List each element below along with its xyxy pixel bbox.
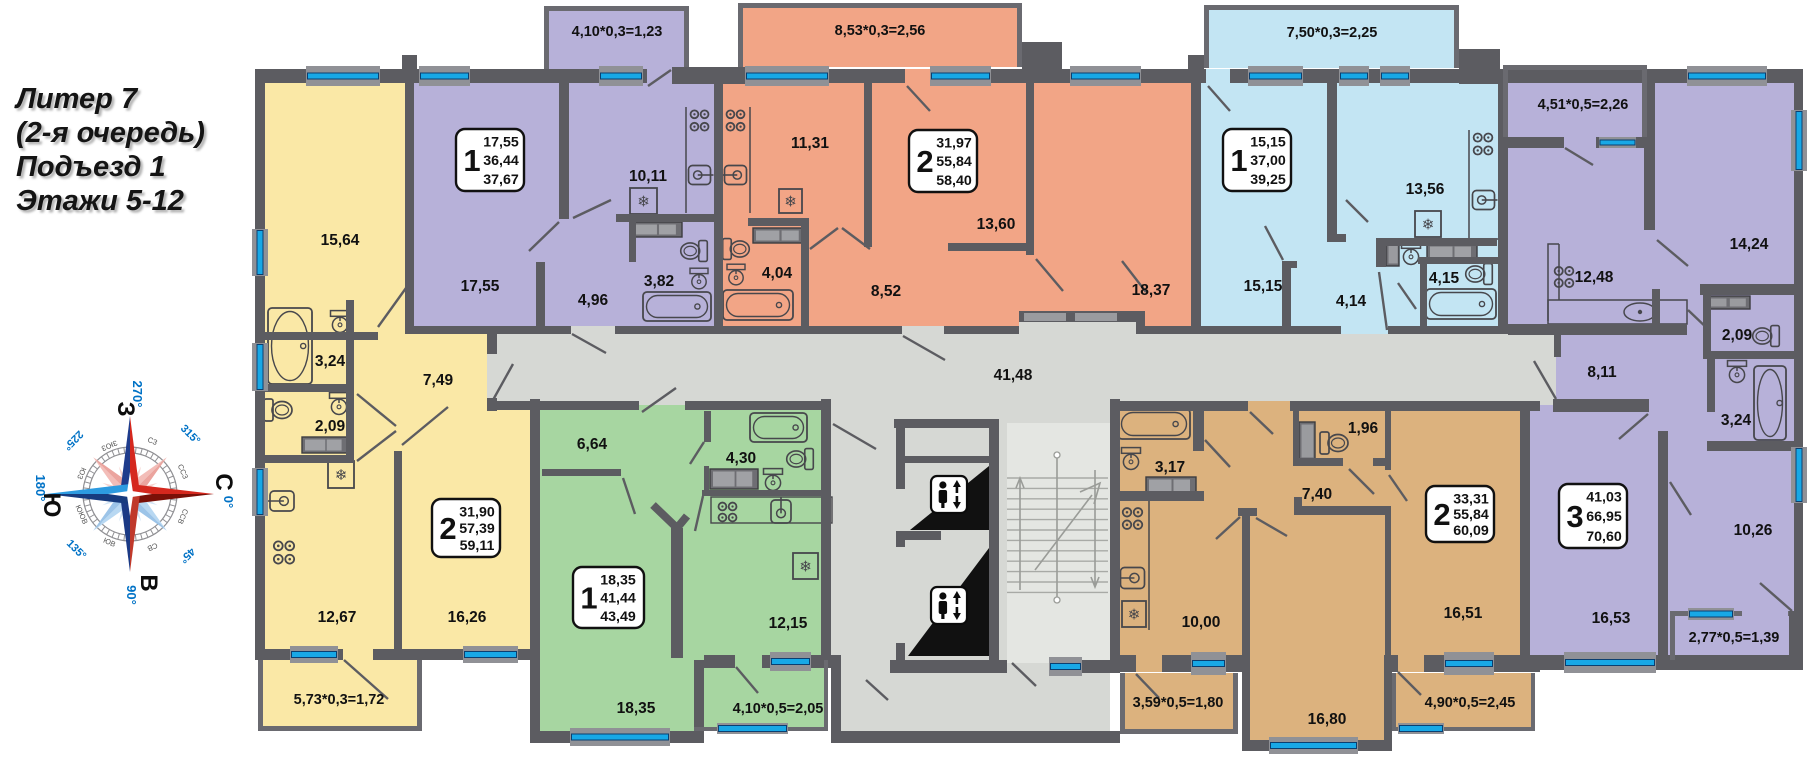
svg-text:12,15: 12,15 — [769, 615, 808, 632]
svg-text:ЮЗ: ЮЗ — [75, 466, 88, 481]
svg-text:60,09: 60,09 — [1453, 523, 1489, 539]
svg-text:4,10*0,5=2,05: 4,10*0,5=2,05 — [733, 701, 824, 717]
svg-text:2,09: 2,09 — [1722, 327, 1753, 344]
svg-text:135°: 135° — [64, 538, 89, 563]
svg-text:55,84: 55,84 — [1453, 507, 1489, 523]
svg-text:1,96: 1,96 — [1348, 420, 1379, 437]
svg-text:270°: 270° — [130, 381, 145, 408]
svg-text:ЗЮЗ: ЗЮЗ — [100, 438, 119, 453]
svg-text:10,00: 10,00 — [1182, 614, 1221, 631]
svg-text:18,37: 18,37 — [1132, 282, 1171, 299]
svg-text:8,53*0,3=2,56: 8,53*0,3=2,56 — [835, 23, 926, 39]
svg-text:2: 2 — [1433, 497, 1450, 532]
svg-text:41,44: 41,44 — [600, 591, 636, 607]
svg-text:66,95: 66,95 — [1586, 509, 1622, 525]
svg-text:❄: ❄ — [1128, 607, 1141, 624]
svg-text:41,03: 41,03 — [1586, 490, 1622, 506]
svg-text:4,51*0,5=2,26: 4,51*0,5=2,26 — [1538, 97, 1629, 113]
svg-text:3,82: 3,82 — [644, 273, 674, 290]
svg-text:70,60: 70,60 — [1586, 529, 1622, 545]
svg-text:6,64: 6,64 — [577, 436, 608, 453]
svg-text:4,15: 4,15 — [1429, 270, 1460, 287]
svg-text:4,96: 4,96 — [578, 292, 609, 309]
svg-text:41,48: 41,48 — [994, 367, 1033, 384]
svg-text:10,26: 10,26 — [1734, 522, 1773, 539]
svg-text:45°: 45° — [177, 545, 197, 565]
svg-text:❄: ❄ — [799, 559, 812, 576]
svg-text:16,53: 16,53 — [1592, 610, 1631, 627]
svg-text:5,73*0,3=1,72: 5,73*0,3=1,72 — [294, 692, 385, 708]
svg-text:58,40: 58,40 — [936, 173, 972, 189]
svg-text:С: С — [210, 473, 237, 490]
svg-text:4,30: 4,30 — [726, 450, 756, 467]
svg-text:7,50*0,3=2,25: 7,50*0,3=2,25 — [1287, 25, 1378, 41]
svg-text:8,11: 8,11 — [1587, 364, 1617, 381]
svg-text:4,04: 4,04 — [762, 265, 793, 282]
svg-text:3,24: 3,24 — [1721, 412, 1752, 429]
svg-text:7,40: 7,40 — [1302, 486, 1332, 503]
svg-text:16,80: 16,80 — [1308, 711, 1347, 728]
svg-text:2,77*0,5=1,39: 2,77*0,5=1,39 — [1689, 630, 1780, 646]
svg-text:4,10*0,3=1,23: 4,10*0,3=1,23 — [572, 24, 663, 40]
svg-text:❄: ❄ — [784, 194, 797, 211]
svg-text:14,24: 14,24 — [1730, 236, 1769, 253]
svg-text:59,11: 59,11 — [460, 538, 495, 554]
svg-text:2: 2 — [439, 511, 456, 546]
svg-text:СВ: СВ — [146, 541, 159, 553]
svg-text:❄: ❄ — [1422, 217, 1435, 234]
svg-text:33,31: 33,31 — [1453, 492, 1489, 508]
svg-text:37,67: 37,67 — [483, 172, 519, 188]
svg-text:ЮЮВ: ЮЮВ — [74, 503, 90, 525]
svg-text:18,35: 18,35 — [617, 700, 656, 717]
svg-text:13,56: 13,56 — [1406, 181, 1445, 198]
svg-text:❄: ❄ — [335, 467, 348, 484]
svg-text:315°: 315° — [178, 423, 203, 448]
svg-text:4,90*0,5=2,45: 4,90*0,5=2,45 — [1425, 695, 1516, 711]
svg-text:2: 2 — [916, 144, 933, 179]
svg-text:ССВ: ССВ — [176, 507, 190, 525]
svg-text:12,67: 12,67 — [318, 609, 357, 626]
svg-text:90°: 90° — [124, 585, 139, 605]
svg-text:15,15: 15,15 — [1244, 278, 1283, 295]
svg-text:37,00: 37,00 — [1250, 153, 1286, 169]
svg-text:15,15: 15,15 — [1250, 135, 1286, 151]
svg-text:1: 1 — [1230, 143, 1247, 178]
svg-text:2,09: 2,09 — [315, 418, 346, 435]
svg-text:55,84: 55,84 — [936, 154, 972, 170]
svg-text:7,49: 7,49 — [423, 372, 454, 389]
svg-text:17,55: 17,55 — [461, 278, 500, 295]
svg-text:СЗ: СЗ — [146, 435, 159, 447]
svg-text:11,31: 11,31 — [791, 135, 829, 152]
svg-text:18,35: 18,35 — [600, 573, 636, 589]
svg-text:39,25: 39,25 — [1250, 172, 1286, 188]
svg-text:❄: ❄ — [637, 194, 650, 211]
svg-text:31,97: 31,97 — [936, 136, 972, 152]
svg-text:ЮВ: ЮВ — [102, 536, 117, 549]
svg-text:0°: 0° — [221, 496, 236, 508]
svg-text:10,11: 10,11 — [629, 168, 667, 185]
svg-text:4,14: 4,14 — [1336, 293, 1367, 310]
svg-text:16,51: 16,51 — [1444, 605, 1483, 622]
svg-text:3,24: 3,24 — [315, 353, 346, 370]
svg-text:43,49: 43,49 — [600, 609, 636, 625]
svg-text:31,90: 31,90 — [459, 505, 495, 521]
svg-text:17,55: 17,55 — [483, 135, 519, 151]
svg-text:3,59*0,5=1,80: 3,59*0,5=1,80 — [1133, 695, 1224, 711]
svg-text:13,60: 13,60 — [977, 216, 1016, 233]
svg-text:ССЗ: ССЗ — [176, 463, 190, 481]
svg-text:12,48: 12,48 — [1575, 269, 1614, 286]
svg-text:15,64: 15,64 — [321, 232, 360, 249]
svg-text:225°: 225° — [61, 428, 86, 453]
svg-text:16,26: 16,26 — [448, 609, 487, 626]
svg-text:1: 1 — [463, 143, 480, 178]
svg-text:3: 3 — [1566, 499, 1583, 534]
svg-text:180°: 180° — [33, 475, 48, 502]
svg-text:57,39: 57,39 — [459, 521, 495, 537]
svg-text:36,44: 36,44 — [483, 153, 519, 169]
svg-text:1: 1 — [580, 581, 597, 616]
svg-text:3,17: 3,17 — [1155, 459, 1185, 476]
svg-text:8,52: 8,52 — [871, 283, 901, 300]
